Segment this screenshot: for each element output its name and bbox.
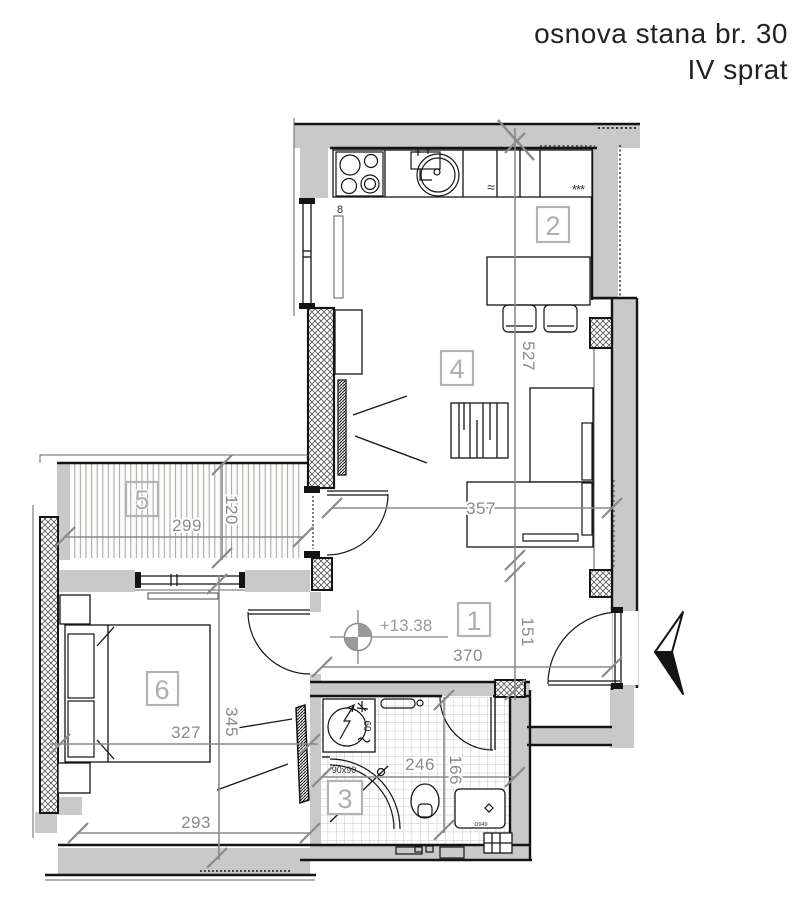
- dim-370: 370: [453, 646, 483, 665]
- entrance-arrow-icon: [655, 612, 683, 694]
- kitchen-radiator: [334, 216, 343, 298]
- floor-plan-sheet: osnova stana br. 30 IV sprat: [0, 0, 796, 906]
- dim-327: 327: [171, 723, 201, 742]
- hall-cabinet: [335, 310, 362, 374]
- tv-living-icon: [338, 380, 427, 475]
- washing-machine-icon: 60: [323, 699, 375, 752]
- washer-width-label: 60: [361, 720, 372, 732]
- terrace-floor-hatch: [70, 463, 303, 558]
- duct-shaft: [484, 833, 512, 853]
- dining-chair: [544, 305, 577, 332]
- elevation-value: +13.38: [380, 616, 432, 635]
- room-label-2: 2: [545, 211, 560, 241]
- dining-chair: [503, 305, 536, 332]
- sink-label: D949: [474, 822, 487, 828]
- room-label-6: 6: [154, 675, 169, 705]
- radiator-label: 8: [337, 204, 343, 216]
- dim-345: 345: [222, 707, 241, 737]
- dim-357: 357: [466, 499, 496, 518]
- floor-plan-drawing: ≈ *** 8: [0, 0, 796, 906]
- dim-166: 166: [446, 755, 465, 785]
- dim-293: 293: [181, 813, 211, 832]
- shower-size-label: 90x90: [332, 765, 357, 775]
- dim-120: 120: [222, 495, 241, 525]
- freezer-symbol: ***: [572, 182, 585, 197]
- bathroom-sink-icon: D949: [455, 789, 505, 828]
- dim-246: 246: [405, 755, 435, 774]
- dining-table: [487, 257, 590, 305]
- dim-151: 151: [518, 617, 537, 647]
- dim-299: 299: [172, 516, 202, 535]
- room-label-3: 3: [337, 784, 352, 814]
- dishwasher-symbol: ≈: [487, 179, 495, 195]
- room-label-1: 1: [466, 606, 481, 636]
- tv-stand: [451, 403, 508, 458]
- dim-527: 527: [519, 341, 538, 371]
- room-label-4: 4: [449, 354, 464, 384]
- room-label-5: 5: [134, 485, 149, 515]
- nightstand: [58, 763, 90, 793]
- nightstand: [60, 595, 90, 624]
- level-marker: +13.38: [330, 610, 448, 664]
